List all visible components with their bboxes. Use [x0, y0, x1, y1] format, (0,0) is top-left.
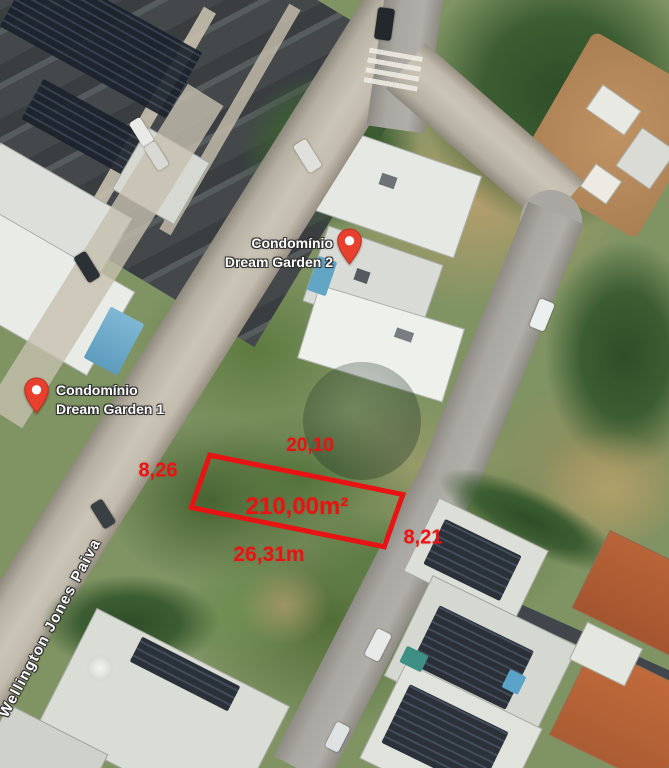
lot-width-bottom-label: 26,31m: [233, 543, 304, 567]
marker-label-line1: Condomínio: [153, 234, 333, 253]
marker-label-line2: Dream Garden 2: [153, 253, 333, 272]
marker-label-dream-garden-2[interactable]: Condomínio Dream Garden 2: [153, 234, 333, 272]
map-pin-icon[interactable]: [23, 377, 50, 420]
lot-side-left-label: 8,26: [139, 460, 178, 483]
marker-label-line1: Condomínio: [56, 381, 164, 400]
marker-label-line2: Dream Garden 1: [56, 400, 164, 419]
dry-grass: [240, 565, 330, 645]
map-pin-icon[interactable]: [336, 228, 363, 271]
lot-side-right-label: 8,21: [404, 527, 443, 550]
lot-width-top-label: 20,10: [286, 435, 334, 457]
watermark-circle: [303, 362, 421, 480]
lot-area-label: 210,00m²: [246, 493, 349, 521]
satellite-map[interactable]: 20,10 8,26 210,00m² 8,21 26,31m Condomín…: [0, 0, 669, 768]
marker-label-dream-garden-1[interactable]: Condomínio Dream Garden 1: [56, 381, 164, 419]
water-tank: [87, 655, 113, 681]
